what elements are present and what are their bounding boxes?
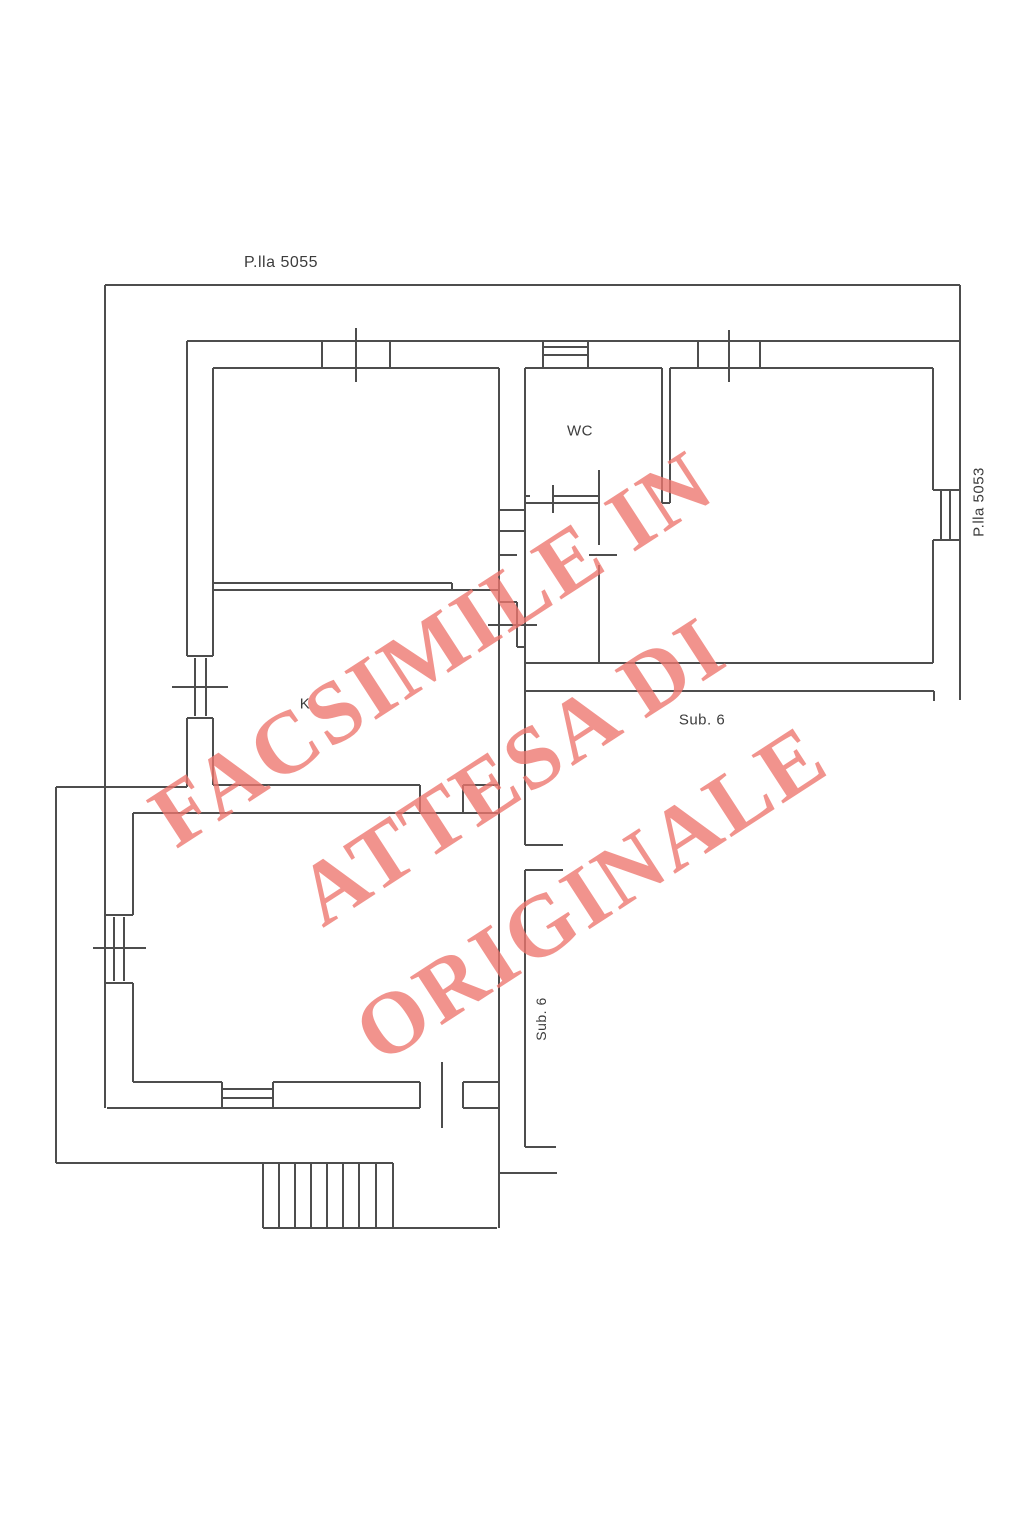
area-label-sub6: Sub. 6 xyxy=(679,712,725,729)
floorplan-drawing xyxy=(0,0,1023,1535)
parcel-label-5053: P.lla 5053 xyxy=(971,467,988,537)
room-label-wc: WC xyxy=(567,423,593,440)
room-label-k: K xyxy=(300,696,311,713)
parcel-label-5055: P.lla 5055 xyxy=(244,254,318,272)
floorplan-page: P.lla 5055P.lla 5053WCKSub. 6Sub. 6 FACS… xyxy=(0,0,1023,1535)
area-label-sub6-vertical: Sub. 6 xyxy=(533,997,549,1040)
